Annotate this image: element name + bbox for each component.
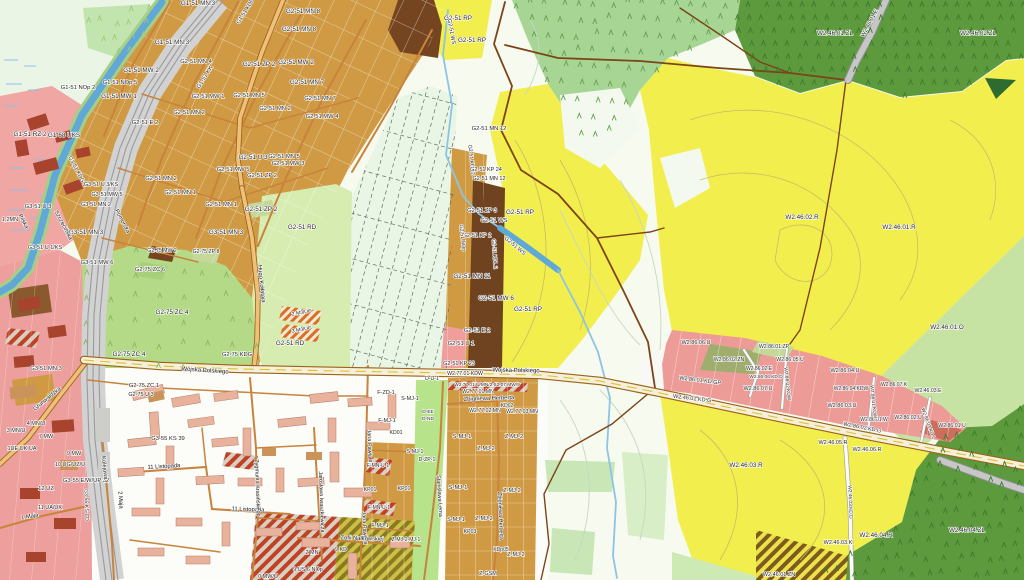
zone-label: G3-51 MN 3	[30, 366, 62, 372]
zone-label: KP01	[398, 486, 411, 492]
building	[196, 475, 224, 484]
zone-label: W2.77.02 MN	[469, 408, 501, 414]
zone-label: G2-51 MN 7	[290, 79, 325, 86]
zone-label: G2-51 ZP 2	[243, 61, 276, 68]
building	[348, 397, 372, 407]
zone-label: W2.46.02.ZL	[960, 30, 997, 37]
zone-label: G2-51 U 1	[448, 341, 475, 347]
zone-label: S-MJ-1	[449, 485, 468, 491]
building	[20, 488, 40, 499]
building	[118, 467, 144, 477]
zone-label: G3-51 MN 3	[69, 229, 104, 236]
building	[243, 428, 251, 456]
zone-label: G2-51 RD	[276, 340, 305, 347]
zone-label: 10 UG/UZ/U	[55, 462, 85, 468]
zone-label: Z-MJ-2	[505, 434, 523, 440]
building	[222, 522, 230, 546]
street-label: Wojska Polskiego	[492, 368, 540, 375]
zone-label: G1-51 MW 2	[123, 67, 159, 74]
zone-label: KP03	[464, 529, 477, 535]
zone-label: G2-51 MN 8	[282, 26, 317, 33]
zone-label: 1UE UK UA	[7, 446, 36, 452]
building	[52, 419, 75, 433]
zone-label: G3-55 KS-CD	[82, 489, 89, 521]
zone-label: D-ND	[422, 416, 435, 422]
zone-label: 7 MW	[39, 434, 54, 440]
zone-label: G2-51 MW 1	[192, 94, 225, 100]
building	[156, 478, 164, 504]
zone-label: 3 MN/U	[7, 428, 26, 434]
zone-label: W2.86.04.U	[830, 368, 859, 374]
building	[96, 408, 110, 442]
zone-label: 0 MW/U	[258, 574, 278, 580]
zone-label: G2-51 ZP 2	[245, 206, 278, 213]
zone-label: G1-51 MN 3	[155, 39, 190, 46]
zone-label: W2.86.07.K	[881, 382, 908, 388]
zone-label: W2.46.01.ZL	[817, 30, 854, 37]
zone-label: G2-51 MN 2	[173, 110, 205, 116]
zone-label: Z-MJ-2	[477, 446, 494, 452]
zone-label: G2-51 MN 11	[453, 273, 491, 280]
zone-label: G1-51 RZ 2	[14, 131, 47, 138]
zone-label: W2.86.01.U	[938, 423, 966, 429]
building	[330, 452, 339, 482]
zone-label: 2 MN	[305, 550, 318, 556]
zone-label: 12 UZ	[38, 486, 54, 492]
zone-label: W2.86.03.U	[827, 403, 856, 409]
zone-label: G2-51 MW 3	[272, 161, 305, 167]
zone-label: G2-75 ZP 8	[193, 249, 220, 255]
zone-label: S-MJ-1	[401, 396, 419, 402]
building	[256, 528, 282, 536]
zone-label: G2-51 E 2	[464, 328, 490, 334]
zone-label: G2-75 MW 2	[147, 248, 177, 254]
zone-label: S-MJ-1	[407, 449, 424, 455]
zone-label: G2-51 MW 6	[478, 295, 514, 302]
zone-label: G3-51 MN 2	[81, 202, 111, 208]
zone-label: G2-75 KDG	[222, 352, 253, 358]
building	[348, 553, 357, 579]
zone-label: G2-51 MN 12	[472, 176, 505, 182]
zone-label: G2-51 RP	[458, 37, 486, 44]
street-label: Jana Pawła II	[365, 429, 372, 463]
zone-label: 9 MW	[67, 451, 82, 457]
zone-label: D-U-1	[425, 376, 439, 382]
zone-label: G1-51 MW 1	[101, 93, 137, 100]
zone-label: G3-51 MW 6	[81, 260, 114, 266]
zone-label: KDp05	[493, 547, 509, 553]
zone-label: G2-51 WS	[480, 218, 507, 224]
zone-label: F-MN-U-1	[368, 505, 390, 511]
zone-label: W2.46.04.R	[859, 532, 893, 539]
zone-label: W2.46.06.R	[852, 447, 881, 453]
zone-label: G1-68 UKS	[48, 132, 80, 139]
zone-label: W2.46.05.R	[818, 440, 847, 446]
zone-label: G2-51 KP 23	[443, 361, 475, 367]
zone-label: G2-51 RP	[514, 306, 542, 313]
zone-label: Z-MJ-2	[503, 488, 520, 494]
zone-label: W2.46.03.K	[824, 540, 853, 546]
zone-label: G2-75 ZC 4	[156, 309, 189, 316]
zone-label: G2-51 MW 5	[217, 167, 250, 173]
zone-label: W2.46.03.KD.D	[846, 485, 853, 519]
building	[186, 556, 210, 564]
building	[306, 452, 322, 460]
zone-label: G3-51 U 3	[25, 204, 52, 210]
zone-label: G3-51 MW 5	[91, 192, 122, 198]
zone-label: Z-MJ-2	[475, 516, 492, 522]
zone-label: G2-51 U 3	[238, 154, 268, 161]
zone-label: G2-75 ZC 4	[113, 351, 146, 358]
zone-label: D-ZP-1	[419, 457, 436, 463]
zone-label: F-MJ-1	[378, 418, 395, 424]
zone-label: W2.86.01.ZP	[759, 344, 790, 350]
zone-label: W2.86.02.U	[894, 415, 922, 421]
zone-label: W2.77.01 KDW	[447, 371, 483, 377]
zone-label: G2-51 MN 12	[472, 126, 507, 132]
building	[388, 394, 396, 418]
building	[276, 468, 284, 492]
zone-label: G2-51 MN 4	[180, 59, 212, 65]
zone-label: W2.86.04.KDW	[834, 386, 869, 392]
zone-label: F-ZD-1	[377, 390, 394, 396]
street-label: 2 Maja	[116, 491, 123, 510]
zone-label: W2.46.03.E	[914, 388, 942, 394]
zone-label: G2-51 MN 7	[304, 96, 336, 102]
zone-label: Z-MJ-2-MJ-1	[392, 537, 421, 543]
zone-label: G2-75 ZC 6	[135, 267, 165, 273]
zone-label: W2.77.01 MN	[462, 389, 494, 395]
zone-label: W2.46.04.ZL	[949, 527, 986, 534]
zone-label: S-MJ-1	[447, 517, 465, 523]
map-canvas[interactable]: G1-51 MN 3G1-51 KDD 9G2-51 MN 8G1-51 MN …	[0, 0, 1024, 580]
zone-label: G2-75 U 3	[128, 392, 153, 398]
zone-label: G2-51 MN 8	[286, 8, 321, 15]
zone-label: KP01	[364, 487, 377, 493]
zone-label: KD01	[390, 430, 403, 436]
building	[296, 522, 320, 530]
zone-label: Z-MJ-2	[507, 552, 524, 558]
zone-label: W2.46.01.ZN	[763, 572, 795, 578]
zone-label: W2.86.06.KD.D	[749, 374, 783, 380]
zone-label: G2-51 MW 2	[278, 59, 314, 66]
zone-label: G2-51 MN 2	[145, 176, 177, 182]
building	[149, 412, 160, 439]
zone-label: G2-51 MN 5	[233, 93, 265, 99]
building	[132, 508, 160, 516]
zone-pale-green2	[550, 528, 595, 575]
zone-label: G2-51 ZP 2	[247, 173, 277, 179]
zone-label: Z-GSM	[479, 571, 497, 577]
zone-label: D-EE	[422, 409, 433, 415]
zone-label: G3-51 U 1/KS	[28, 245, 63, 251]
zone-label: W2.86.02.E	[746, 366, 773, 372]
zone-label: S-MJ-1	[453, 434, 472, 440]
zone-label: G2-75 ZC 1	[129, 383, 159, 389]
zone-label: W2.46.01.O	[930, 324, 964, 331]
zone-label: G3-51 MN 3	[209, 229, 244, 236]
zone-label: W2.46.03.R	[729, 462, 763, 469]
building	[26, 552, 46, 562]
zone-label: 9 KD	[335, 547, 347, 553]
zoning-map-viewport[interactable]: G1-51 MN 3G1-51 KDD 9G2-51 MN 8G1-51 MN …	[0, 0, 1024, 580]
zone-label: G2-51 MN 1	[164, 190, 196, 196]
building	[302, 538, 330, 547]
zone-label: W2.86.05.U	[776, 357, 804, 363]
building	[176, 518, 202, 526]
zone-label: W2.46.01.R	[882, 224, 916, 231]
zone-label: G2-51 KP 24	[470, 167, 502, 173]
zone-label: G3-55 KS 39	[151, 436, 185, 442]
zone-label: G1-51 MN 3	[181, 0, 216, 7]
zone-label: 9 US 6 NOp	[293, 567, 323, 573]
building	[138, 548, 164, 556]
zone-label: W2.86.07.U	[743, 386, 772, 392]
zone-label: G1-51 NOp 5	[103, 80, 137, 86]
zone-label: G1-51 NOp 2	[61, 85, 95, 91]
zone-label: F-MJ-1	[371, 523, 388, 529]
zone-label: W2.86.02.ZN	[714, 357, 745, 363]
zone-label: 4 MN/U	[27, 421, 46, 427]
zone-pale-green1	[545, 460, 615, 492]
zone-label: W2.77.03 MN	[506, 409, 538, 415]
zone-label: 11 UA/UK	[38, 505, 62, 511]
zone-label: W2.86.06.U	[681, 340, 710, 346]
zone-pale-green3	[622, 452, 668, 540]
zone-label: W2.46.02.R	[785, 214, 819, 221]
building	[262, 448, 276, 456]
zone-label: G2-51 RP	[506, 209, 534, 216]
zone-label: F-MN-U-1	[367, 463, 389, 469]
zone-label: G2-51 RD	[288, 224, 317, 231]
zone-label: G2-51 ZP 3	[467, 208, 497, 214]
building	[328, 418, 336, 442]
zone-label: G3-51 U 3/KS	[84, 182, 119, 188]
zone-label: 1,2MN	[2, 217, 18, 223]
zone-label: G2-51 MN 5	[268, 154, 300, 160]
zone-label: G2-51 E 2	[132, 120, 158, 126]
zone-label: W2.77.01 U/MN/2-52.07 MW/9	[454, 382, 520, 388]
zone-label: G2-51 MW 4	[306, 114, 340, 120]
zone-label: G2-51 MN 2	[259, 106, 291, 112]
zone-label: G2-51 KP 2	[463, 233, 492, 239]
zone-label: G2-51 MN 1	[205, 202, 237, 208]
building	[54, 518, 76, 529]
